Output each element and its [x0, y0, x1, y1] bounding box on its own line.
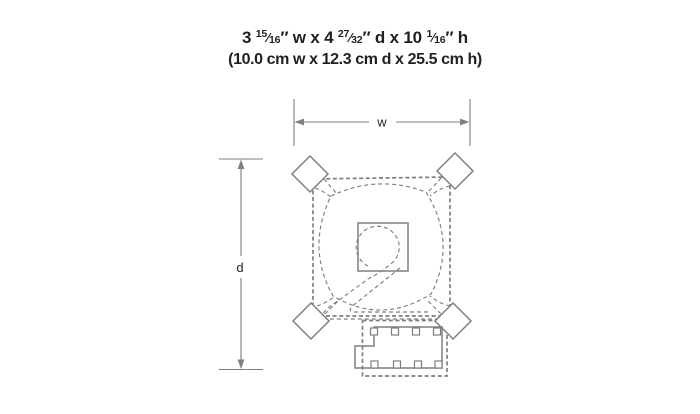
shed-post: [435, 361, 442, 368]
arrowhead-left-icon: [295, 119, 305, 126]
leg-pads: [292, 153, 473, 339]
leg-pad-top-left: [292, 156, 328, 192]
shed-post: [394, 361, 401, 368]
leg-pad-bottom-left: [293, 303, 329, 339]
tower-body-outline: [319, 184, 443, 310]
arrowhead-right-icon: [460, 119, 470, 126]
brace-top-right: [430, 186, 450, 196]
depth-label: d: [236, 260, 243, 275]
depth-dimension: d: [219, 159, 263, 370]
brace-top-left: [324, 179, 336, 193]
shed-post: [415, 361, 422, 368]
width-dimension: w: [294, 99, 470, 146]
arrowhead-down-icon: [238, 360, 245, 370]
brace-bottom-right: [430, 296, 450, 306]
arrowhead-up-icon: [238, 160, 245, 170]
brace-bottom-left: [325, 301, 338, 314]
brace-bottom-left: [317, 297, 334, 306]
shed-post: [413, 328, 420, 335]
width-label: w: [376, 115, 387, 130]
brace-top-right: [428, 178, 441, 192]
footprint-drawing: w d: [0, 0, 700, 414]
brace-bottom-right: [427, 300, 441, 314]
shed-post: [434, 328, 441, 335]
shed-post: [371, 328, 378, 335]
leg-pad-top-right: [437, 153, 473, 189]
slide-spiral-path: [323, 226, 437, 319]
slide-edge: [350, 268, 431, 312]
product-footprint-diagram: 3 15⁄16″ w x 4 27⁄32″ d x 10 1⁄16″ h (10…: [0, 0, 700, 414]
shed-post: [371, 361, 378, 368]
shed-posts: [371, 328, 443, 368]
shed-post: [392, 328, 399, 335]
brace-top-left: [315, 188, 332, 198]
